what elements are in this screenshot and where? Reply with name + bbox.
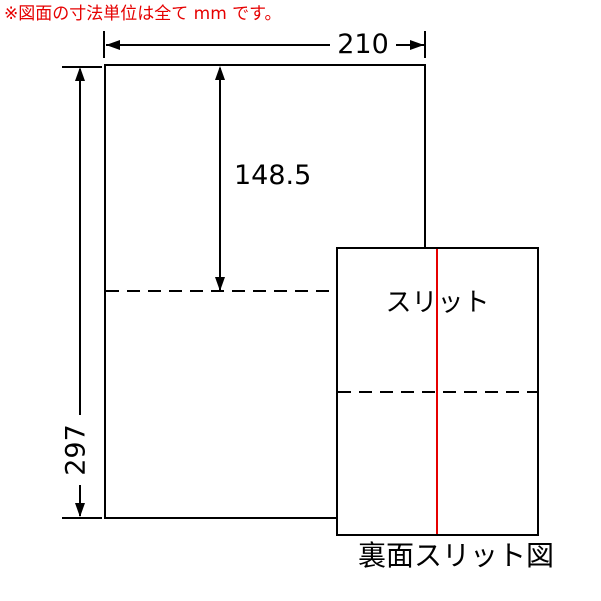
height-dim-tick-bottom (62, 517, 102, 519)
width-dim-arrow-right-icon (410, 40, 424, 50)
height-dim-arrow-up-icon (75, 67, 85, 81)
width-dim-line (106, 44, 330, 46)
width-dim-tick-right (424, 31, 426, 58)
diagram-canvas: ※図面の寸法単位は全て mm です。 210 148.5 297 スリット 裏面… (0, 0, 601, 601)
width-dim-arrow-left-icon (106, 40, 120, 50)
back-view-caption: 裏面スリット図 (358, 540, 554, 572)
back-fold-dashed-line (338, 391, 537, 393)
back-sheet-outline: スリット (336, 247, 539, 536)
unit-note: ※図面の寸法単位は全て mm です。 (4, 4, 281, 24)
height-dim-line-upper (79, 69, 81, 415)
height-dim-arrow-down-icon (75, 503, 85, 517)
front-fold-dashed-line (106, 290, 337, 292)
slit-label: スリット (338, 290, 537, 316)
height-dim-label: 297 (63, 424, 90, 476)
width-dim-tick-left (103, 31, 105, 58)
width-dim-label: 210 (330, 31, 396, 58)
